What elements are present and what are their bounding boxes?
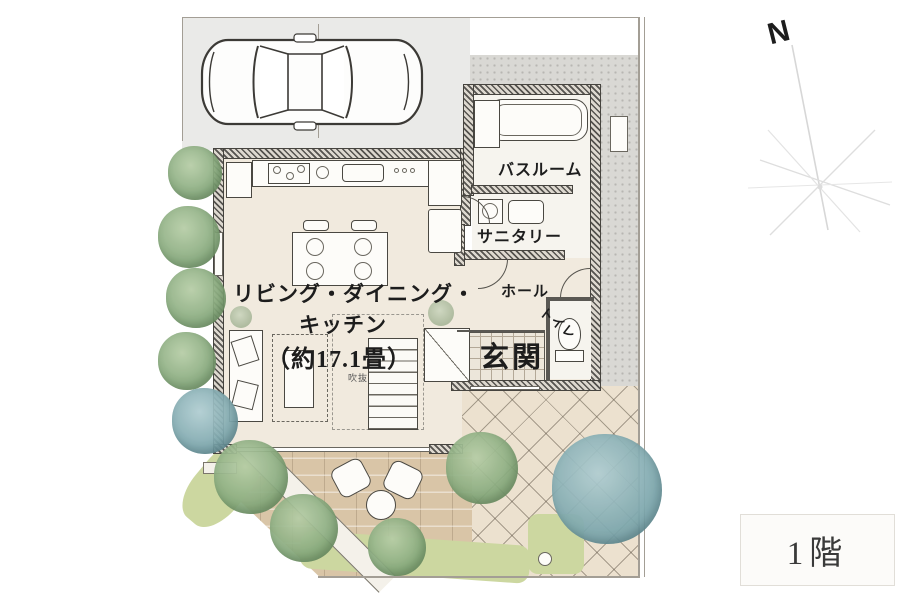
tree-big-blue — [552, 434, 662, 544]
floor-plan-1f: リビング・ダイニング・ キッチン （約17.1畳） 吹抜 バスルーム サニタリー… — [0, 0, 900, 600]
tree-bottom-1 — [214, 440, 288, 514]
stove-burner-3 — [297, 165, 305, 173]
label-entrance: 玄関 — [480, 334, 544, 376]
vanity-sink — [508, 200, 544, 224]
wall-bath-left — [464, 85, 473, 195]
tree-left-4 — [158, 332, 216, 390]
refrigerator — [428, 209, 462, 253]
floor-badge-text: 1階 — [787, 526, 849, 574]
terrace-table — [366, 490, 396, 520]
tree-left-3 — [166, 268, 226, 328]
toilet-tank — [555, 350, 584, 362]
pantry-cabinet — [428, 160, 462, 206]
counter-dot-2 — [402, 168, 407, 173]
wall-sanitary-hall — [464, 251, 564, 259]
tree-terrace-right — [446, 432, 518, 504]
wall-ldk-top — [214, 149, 470, 158]
wall-bath-top — [464, 85, 600, 94]
bathtub-inner — [494, 104, 582, 136]
tree-left-5-blue — [172, 388, 238, 454]
entrance-step-edge — [457, 330, 545, 332]
kitchen-pot — [316, 166, 329, 179]
wall-bath-sanitary — [472, 186, 572, 193]
label-void: 吹抜 — [348, 371, 368, 384]
boundary-bottom — [318, 576, 640, 578]
dining-chair-2 — [351, 220, 377, 231]
tree-left-1 — [168, 146, 222, 200]
counter-dot-1 — [394, 168, 399, 173]
tree-bottom-2 — [270, 494, 338, 562]
label-ldk-line1: リビング・ダイニング・ — [233, 278, 475, 308]
utility-meter — [610, 116, 628, 152]
label-bathroom: バスルーム — [498, 156, 583, 180]
stepping-stone — [538, 552, 552, 566]
closet — [424, 328, 470, 382]
wall-house-right — [591, 85, 600, 390]
ground-gravel-right — [598, 55, 638, 390]
place-setting-2 — [354, 238, 372, 256]
stove-burner-1 — [273, 166, 281, 174]
dimension-line-left — [182, 17, 183, 141]
houseplant-1 — [230, 306, 252, 328]
dining-chair-1 — [303, 220, 329, 231]
car-top-view-icon — [196, 32, 428, 132]
entrance-sliding-door — [470, 386, 540, 390]
kitchen-wall-cabinet — [226, 162, 252, 198]
tree-bottom-3 — [368, 518, 426, 576]
dimension-line-top — [182, 17, 640, 18]
label-ldk-line3: （約17.1畳） — [266, 339, 412, 374]
kitchen-sink — [342, 164, 384, 182]
tree-left-2 — [158, 206, 220, 268]
floor-badge: 1階 — [740, 514, 895, 586]
compass-star — [740, 10, 900, 240]
place-setting-1 — [306, 238, 324, 256]
label-sanitary: サニタリー — [477, 223, 562, 247]
label-hall: ホール — [501, 280, 549, 301]
label-ldk-line2: キッチン — [299, 309, 387, 339]
stove-burner-2 — [286, 172, 294, 180]
counter-dot-3 — [410, 168, 415, 173]
shower-panel — [474, 100, 500, 148]
